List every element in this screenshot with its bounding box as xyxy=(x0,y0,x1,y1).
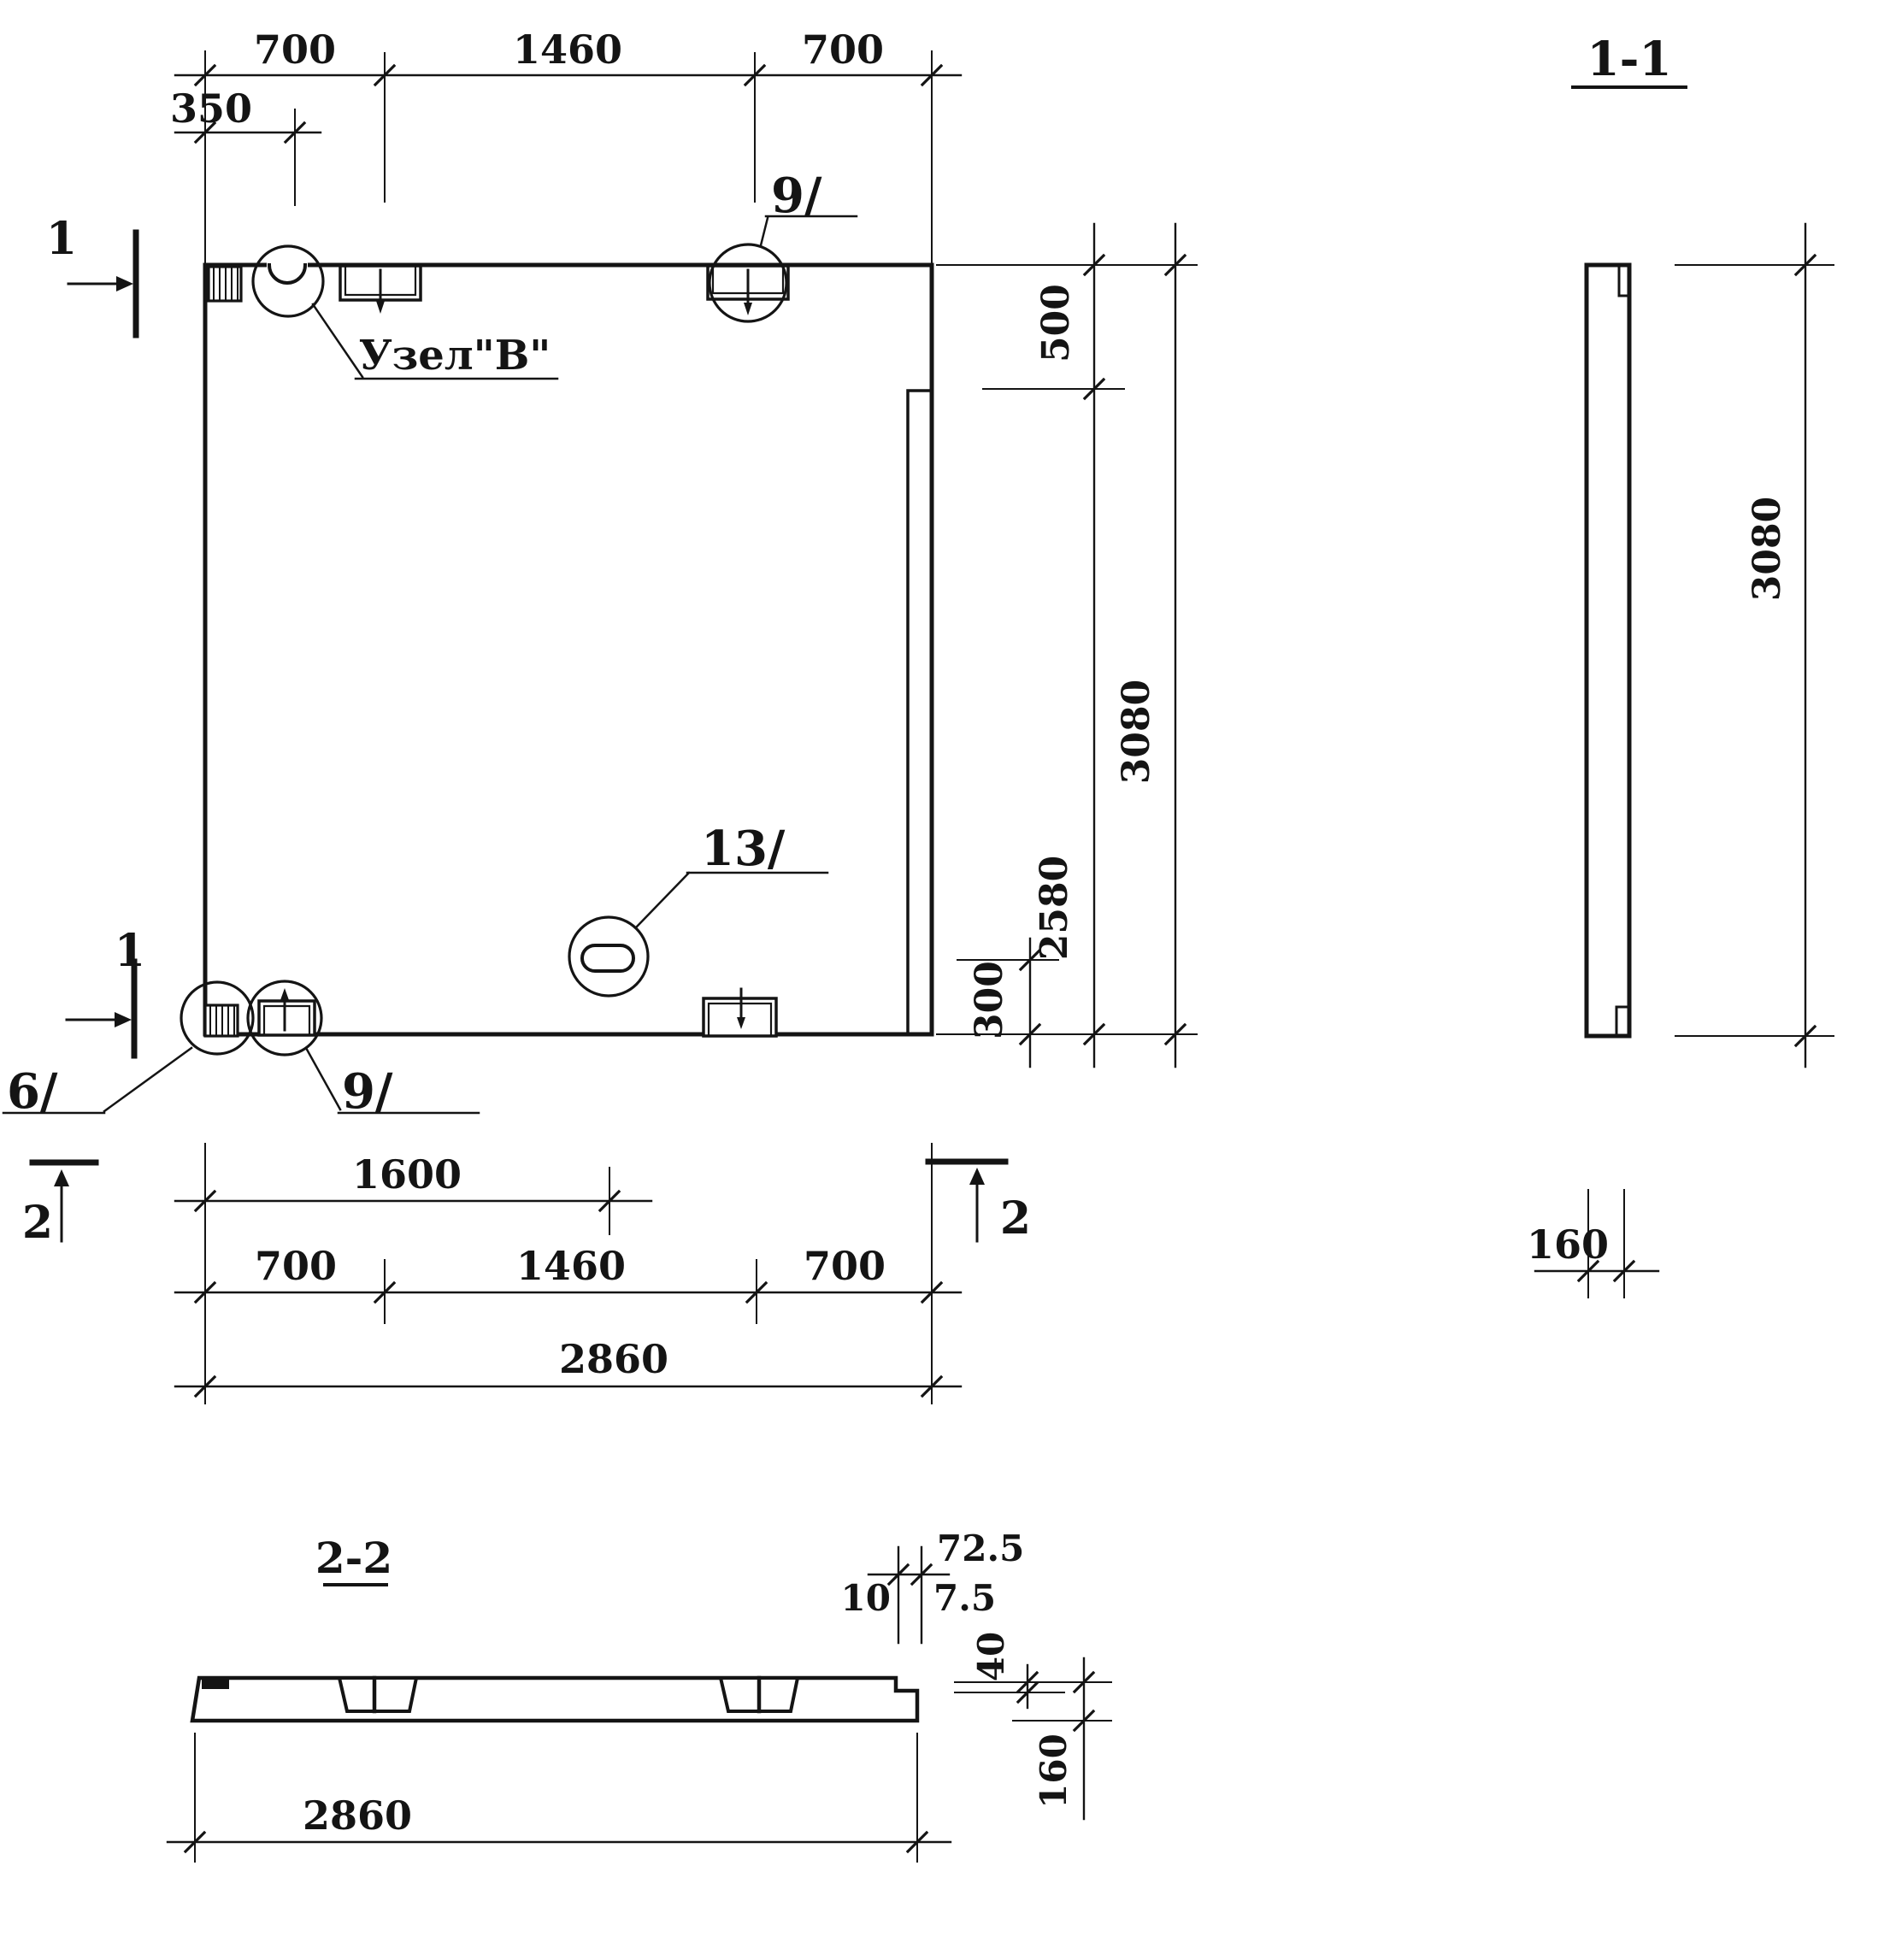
dim-label-sec11-160: 160 xyxy=(1527,1221,1609,1268)
dim-label-sec11-3080: 3080 xyxy=(1746,497,1789,601)
dim-label-plan-3080: 3080 xyxy=(1115,680,1158,784)
section-1-1-outline xyxy=(1587,265,1629,1036)
plan-outline xyxy=(205,265,932,1034)
section-marker-1-top-arrowhead xyxy=(116,276,133,291)
dim-label-72-5: 72.5 xyxy=(937,1527,1024,1569)
section-marker-2-left-label: 2 xyxy=(22,1197,53,1249)
node-b-label: Узел"В" xyxy=(359,332,551,380)
dim-ext-edge-profile xyxy=(898,1547,922,1643)
dim-label-40: 40 xyxy=(970,1632,1012,1681)
callout-label-13: 13/ xyxy=(701,821,786,877)
dim-label-bottom-left-700: 700 xyxy=(255,1243,337,1289)
section-2-2-pocket-1 xyxy=(339,1678,416,1711)
dim-label-sec22-160: 160 xyxy=(1033,1733,1075,1809)
panel-drawing-svg: 700 1460 700 350 500 2580 3080 300 1600 … xyxy=(0,0,1896,1960)
section-marker-1-bottom-arrowhead xyxy=(115,1012,132,1027)
section-marker-2-right-label: 2 xyxy=(1000,1192,1031,1245)
slot-hole xyxy=(582,945,633,971)
section-2-2-outline xyxy=(192,1678,917,1721)
drawing-sheet: 700 1460 700 350 500 2580 3080 300 1600 … xyxy=(0,0,1896,1960)
dim-label-350: 350 xyxy=(170,85,252,132)
dim-label-300: 300 xyxy=(968,961,1011,1039)
dim-label-top-1460: 1460 xyxy=(513,26,622,73)
callout-label-top-9: 9/ xyxy=(771,168,822,224)
section-marker-2-left-arrowhead xyxy=(54,1169,69,1186)
section-marker-1-bottom-label: 1 xyxy=(115,925,145,977)
dim-label-1600: 1600 xyxy=(352,1151,462,1198)
dim-label-sec22-2860: 2860 xyxy=(303,1792,412,1839)
dim-label-500: 500 xyxy=(1034,284,1078,362)
dim-label-top-left-700: 700 xyxy=(254,26,336,73)
section-2-2-title: 2-2 xyxy=(315,1533,392,1583)
section-2-2-embed-mark xyxy=(202,1679,229,1689)
dim-label-2580: 2580 xyxy=(1033,856,1076,960)
section-1-1-title: 1-1 xyxy=(1587,31,1671,86)
dim-label-top-right-700: 700 xyxy=(802,26,884,73)
callout-label-bottom-9: 9/ xyxy=(342,1063,393,1120)
dim-ext-sec11-3080 xyxy=(1675,265,1834,1036)
callout-label-6: 6/ xyxy=(7,1063,58,1120)
dim-label-bottom-1460: 1460 xyxy=(516,1243,626,1289)
dim-ext-top xyxy=(205,51,932,263)
dim-label-plan-2860: 2860 xyxy=(559,1336,668,1382)
dim-label-bottom-right-700: 700 xyxy=(804,1243,886,1289)
section-marker-2-right-arrowhead xyxy=(969,1168,985,1185)
dim-label-10: 10 xyxy=(841,1577,891,1619)
dim-label-7-5: 7.5 xyxy=(933,1577,996,1619)
section-1-1-view xyxy=(1535,87,1834,1298)
section-marker-1-top-label: 1 xyxy=(46,213,77,265)
